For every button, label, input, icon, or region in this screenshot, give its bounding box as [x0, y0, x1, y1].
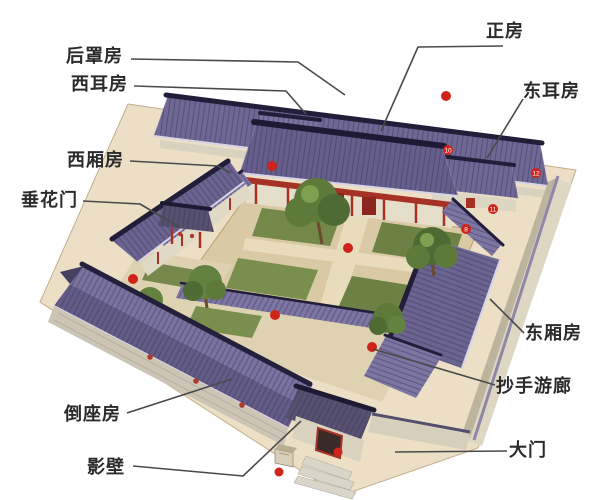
label-zheng-fang: 正房	[486, 22, 524, 40]
label-dong-xiang-fang: 东厢房	[525, 324, 582, 342]
label-dao-zuo-fang: 倒座房	[64, 405, 121, 423]
marker-number: 8	[464, 227, 468, 234]
marker-number: 10	[444, 148, 452, 155]
marker-dot	[343, 243, 353, 253]
label-da-men: 大门	[509, 441, 547, 459]
marker-number: 12	[532, 171, 540, 178]
marker-dot	[334, 448, 343, 457]
marker-dot	[275, 468, 284, 477]
marker-dot	[267, 161, 277, 171]
label-dong-er-fang: 东耳房	[523, 82, 580, 100]
marker-number: 11	[490, 207, 497, 214]
callout-da-men	[395, 451, 507, 452]
label-chui-hua-men: 垂花门	[21, 191, 78, 209]
marker-dot	[270, 310, 280, 320]
label-ying-bi: 影壁	[87, 458, 125, 476]
label-chao-shou-you-lang: 抄手游廊	[496, 377, 572, 395]
marker-dot	[128, 274, 138, 284]
label-hou-zhao-fang: 后罩房	[66, 47, 123, 65]
callout-zheng-fang	[381, 46, 503, 131]
label-xi-xiang-fang: 西厢房	[67, 151, 124, 169]
marker-dot	[441, 91, 451, 101]
siheyuan-diagram: 10 12 11 8 后罩房 西耳房 西厢房 垂花门 正房 东耳房 东厢房 抄手…	[0, 0, 605, 500]
label-xi-er-fang: 西耳房	[71, 75, 128, 93]
